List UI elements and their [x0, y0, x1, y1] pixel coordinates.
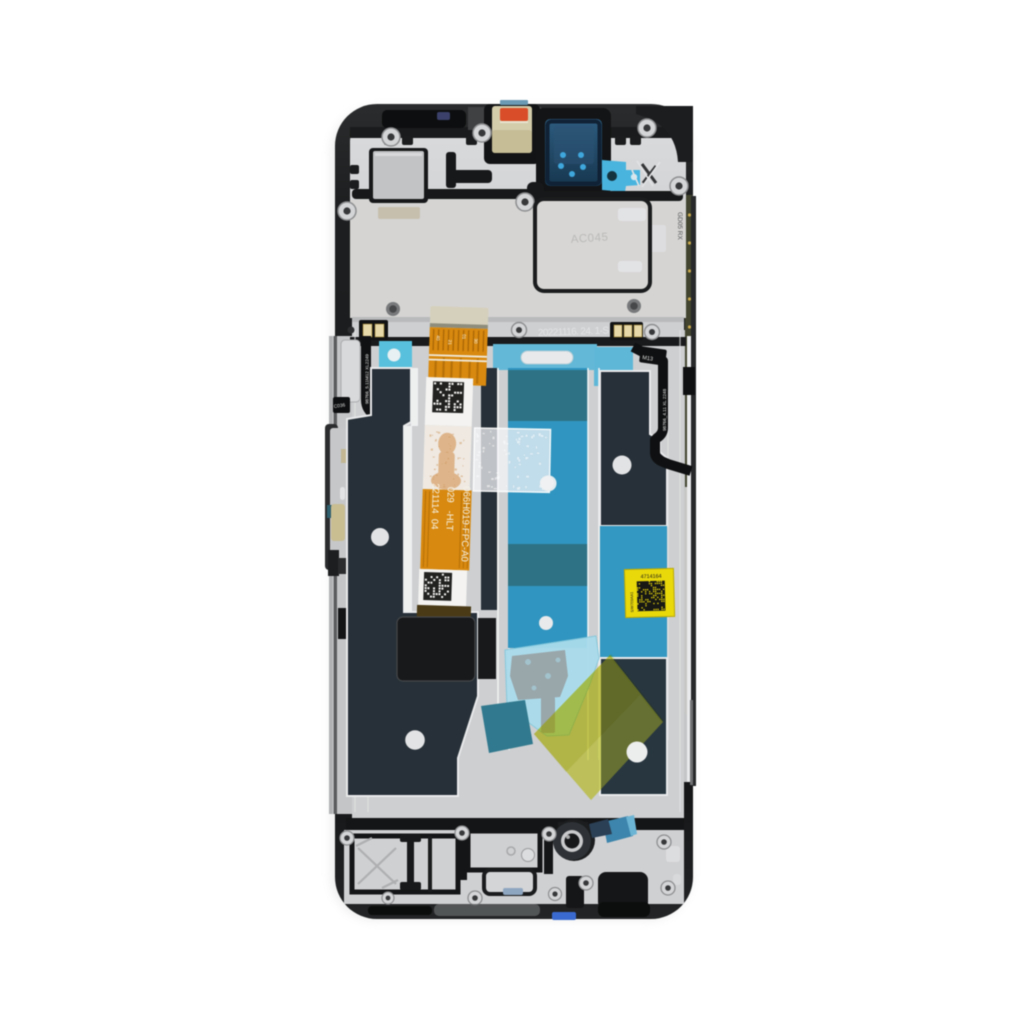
svg-text:221114 04: 221114 04 [428, 483, 440, 529]
svg-text:4714164: 4714164 [641, 574, 662, 581]
svg-text:98766_4.11 XL 2248: 98766_4.11 XL 2248 [662, 388, 667, 431]
svg-text:S/W709AA1: S/W709AA1 [630, 592, 635, 613]
svg-text:029 -HLT: 029 -HLT [443, 487, 455, 532]
svg-text:98766_5.11M12 XL2249: 98766_5.11M12 XL2249 [365, 354, 370, 404]
svg-text:21: 21 [447, 340, 452, 346]
svg-text:40: 40 [435, 335, 440, 341]
svg-text:GD05 RX: GD05 RX [676, 212, 683, 240]
svg-text:01: 01 [461, 334, 466, 340]
svg-text:30: 30 [473, 338, 478, 344]
